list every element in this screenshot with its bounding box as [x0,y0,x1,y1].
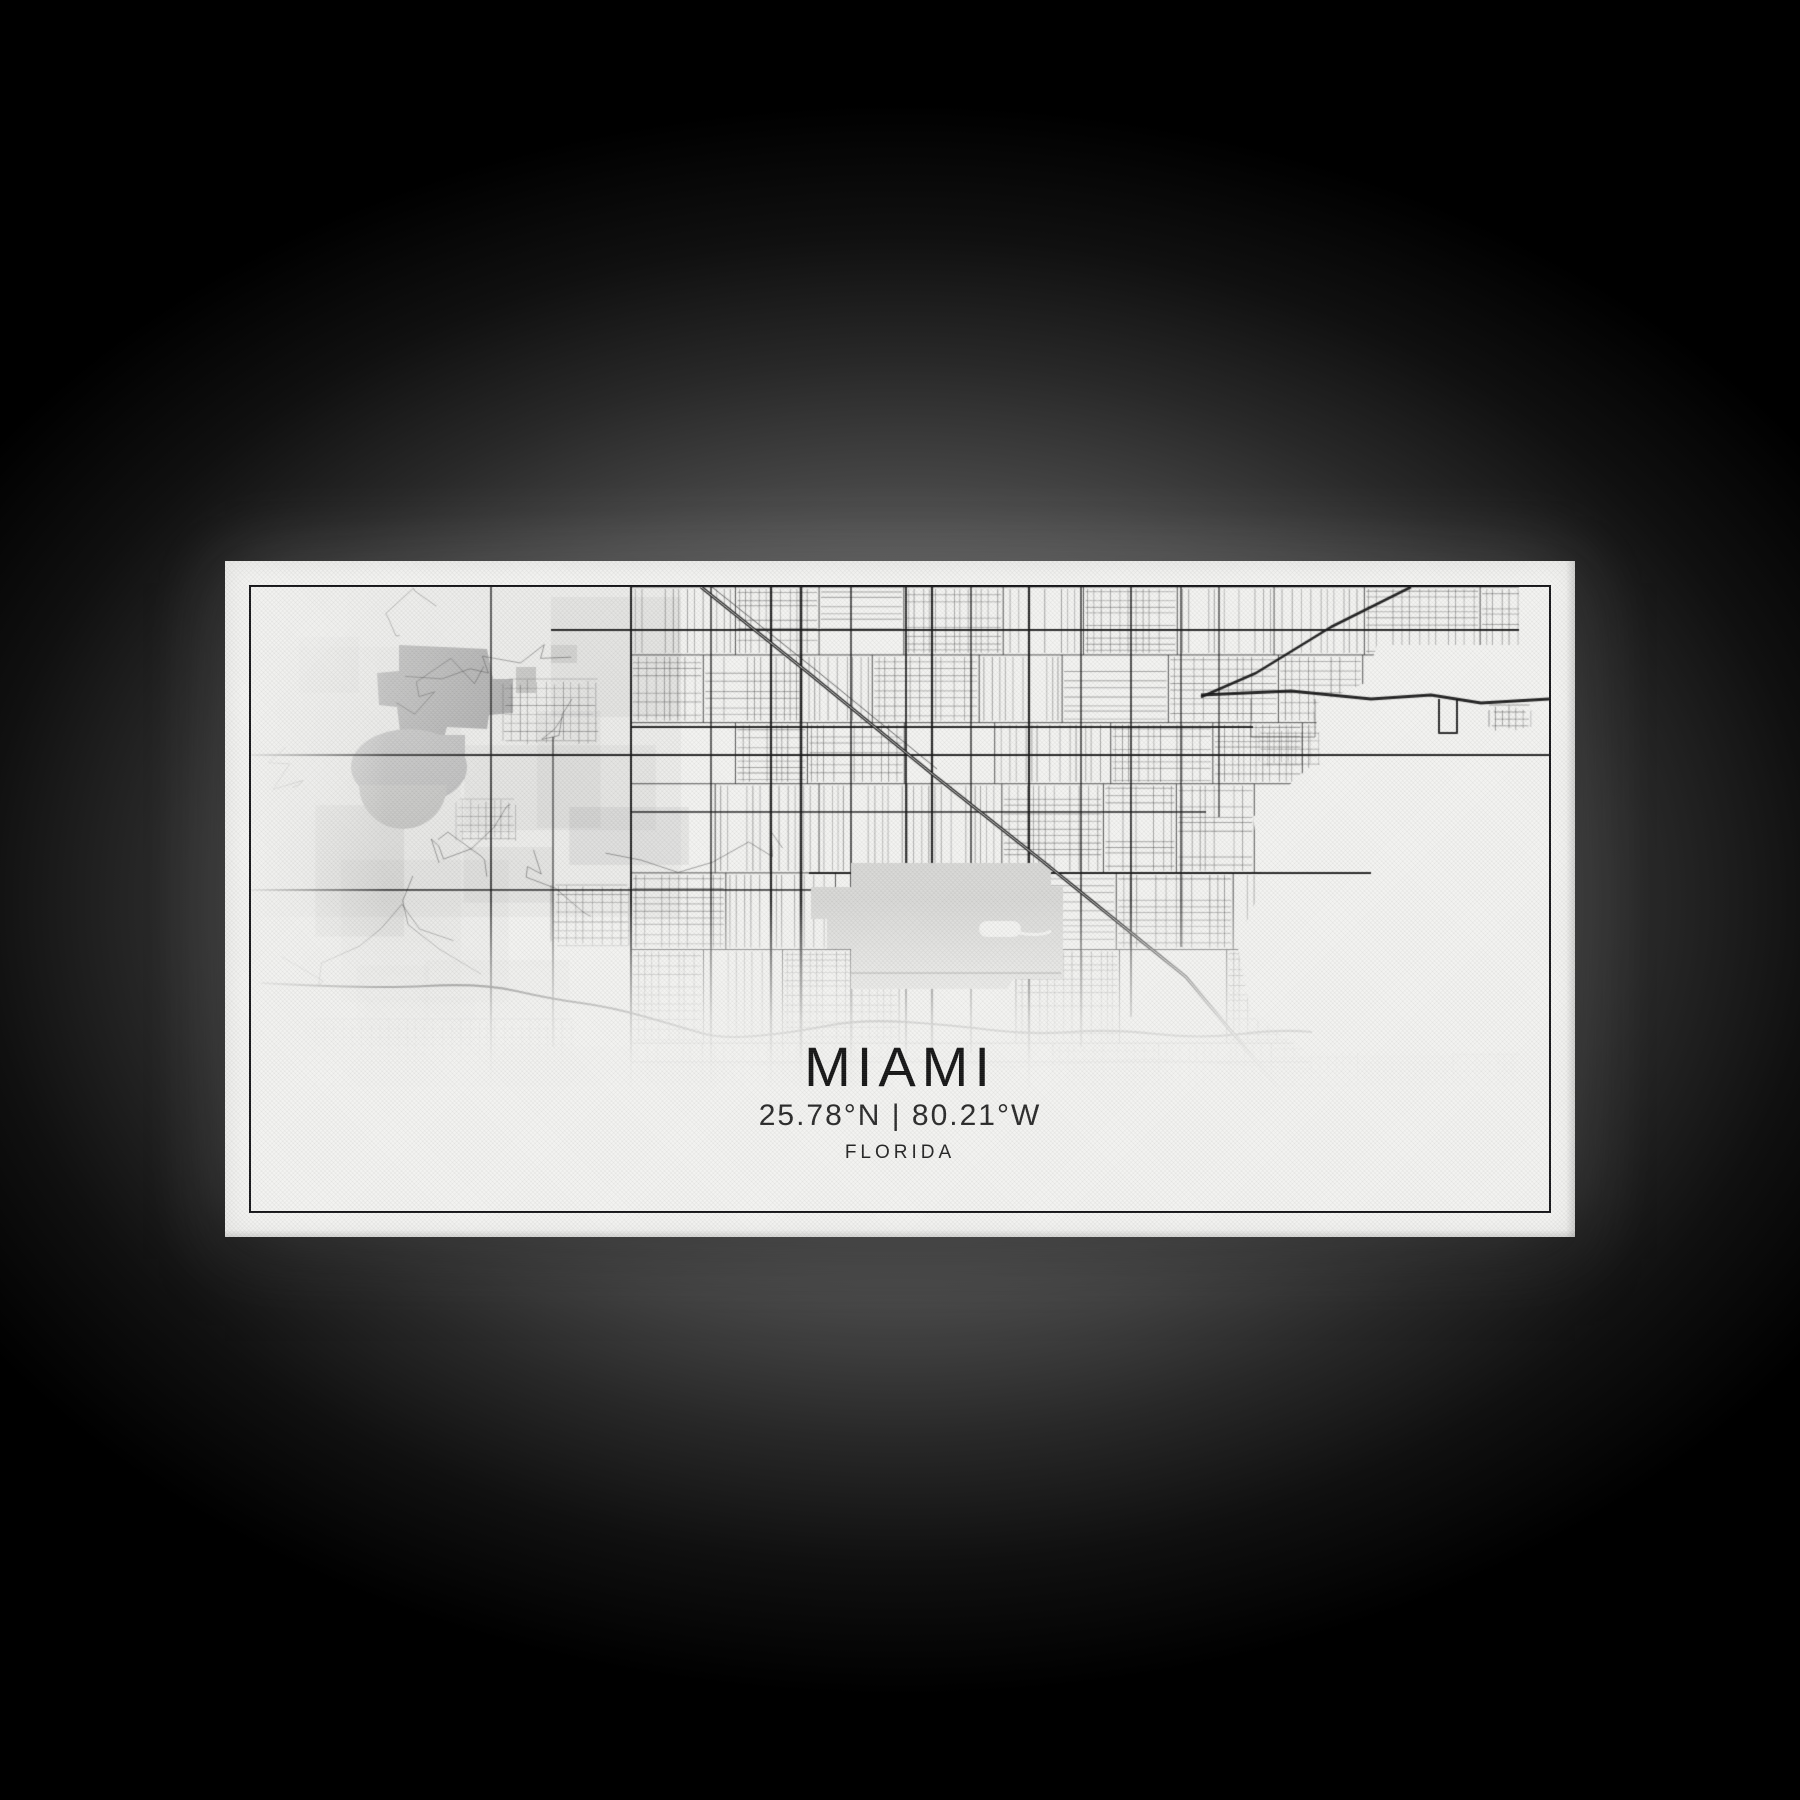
coordinates-label: 25.78°N | 80.21°W [225,1099,1575,1134]
canvas-edge-bottom [225,1230,1575,1237]
title-block: MIAMI 25.78°N | 80.21°W FLORIDA [225,1039,1575,1162]
city-title: MIAMI [225,1039,1575,1095]
canvas-print: MIAMI 25.78°N | 80.21°W FLORIDA [225,561,1575,1237]
region-label: FLORIDA [225,1143,1575,1162]
wall-background: MIAMI 25.78°N | 80.21°W FLORIDA [0,0,1800,1800]
